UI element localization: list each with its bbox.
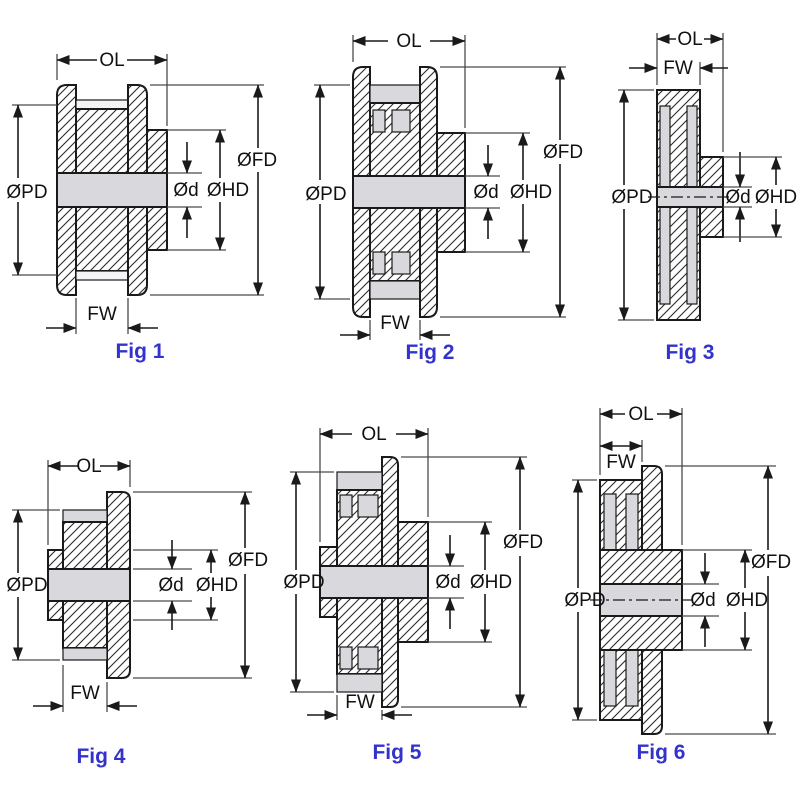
fig3-dim-fw: FW (629, 58, 728, 85)
figure-6-drawing: OL FW ØPD ØFD ØHD (545, 390, 800, 790)
fig2-label-d: Ød (473, 182, 498, 203)
fig1-label-hd: ØHD (207, 180, 249, 201)
fig6-label-fd: ØFD (751, 552, 791, 573)
fig2-label-pd: ØPD (305, 184, 346, 205)
figure-5-drawing: OL ØPD ØFD ØHD Ød (280, 390, 545, 790)
fig6-tooth-groove (626, 650, 638, 706)
fig6-flange-bottom (642, 650, 662, 734)
fig5-label-hd: ØHD (470, 572, 512, 593)
fig4-label-fw: FW (70, 683, 100, 704)
fig2-belt-band-bottom (370, 281, 420, 299)
fig1-dim-d: Ød (167, 142, 202, 238)
fig2-cross-section (353, 67, 465, 317)
fig5-bore (320, 566, 428, 598)
fig6-label-pd: ØPD (564, 590, 605, 611)
fig1-bore (57, 173, 167, 207)
fig4-label-fd: ØFD (228, 550, 268, 571)
fig3-label-ol: OL (677, 29, 702, 50)
fig3-label-fw: FW (663, 58, 693, 79)
fig1-label-d: Ød (173, 180, 198, 201)
fig5-caption: Fig 5 (372, 741, 421, 764)
fig1-dim-pd: ØPD (6, 105, 57, 275)
fig1-cross-section (57, 85, 167, 295)
fig2-recess (373, 110, 385, 132)
pulley-dimension-diagram-sheet: OL ØPD ØFD ØHD Ød (0, 0, 800, 800)
fig2-dim-pd: ØPD (305, 85, 350, 299)
fig2-recess (392, 252, 410, 274)
fig6-tooth-groove (604, 494, 616, 550)
fig5-recess (340, 495, 352, 517)
fig2-label-fd: ØFD (543, 142, 583, 163)
fig1-belt-band-bottom (76, 271, 128, 280)
fig2-bore (353, 176, 465, 208)
fig5-belt-band-top (337, 472, 382, 490)
fig3-cross-section (648, 90, 732, 320)
figure-2-drawing: OL ØPD ØFD ØHD Ød (280, 10, 590, 375)
figure-1-drawing: OL ØPD ØFD ØHD Ød (0, 10, 280, 370)
fig6-label-fw: FW (606, 452, 636, 473)
fig5-recess (358, 495, 378, 517)
fig6-tooth-groove (604, 650, 616, 706)
fig5-label-fd: ØFD (503, 532, 543, 553)
fig4-caption: Fig 4 (76, 745, 125, 768)
fig6-flange-top (642, 466, 662, 550)
fig4-belt-band-top (63, 510, 107, 522)
fig2-recess (392, 110, 410, 132)
fig5-dim-d: Ød (428, 535, 464, 629)
fig2-caption: Fig 2 (405, 341, 454, 364)
figure-4-drawing: OL ØPD ØFD ØHD Ød (0, 390, 280, 790)
fig4-dim-hd: ØHD (133, 550, 238, 620)
fig5-label-ol: OL (361, 424, 386, 445)
fig1-label-fw: FW (87, 304, 117, 325)
fig3-label-d: Ød (725, 187, 750, 208)
fig6-caption: Fig 6 (636, 741, 685, 764)
fig1-label-fd: ØFD (237, 150, 277, 171)
fig3-dim-pd: ØPD (611, 90, 654, 320)
fig2-belt-band-top (370, 85, 420, 103)
fig6-label-hd: ØHD (726, 590, 768, 611)
fig2-label-ol: OL (396, 31, 421, 52)
fig2-dim-d: Ød (465, 145, 500, 239)
fig4-label-pd: ØPD (6, 575, 47, 596)
fig6-dim-fw: FW (600, 440, 642, 473)
fig5-label-pd: ØPD (283, 572, 324, 593)
fig3-label-hd: ØHD (755, 187, 797, 208)
fig4-label-hd: ØHD (196, 575, 238, 596)
fig5-recess (340, 647, 352, 669)
fig2-label-fw: FW (380, 313, 410, 334)
fig3-dim-d: Ød (723, 152, 752, 242)
fig1-label-ol: OL (99, 50, 124, 71)
fig6-tooth-groove (626, 494, 638, 550)
fig6-label-ol: OL (628, 404, 653, 425)
fig4-bore (48, 569, 130, 601)
fig6-label-d: Ød (690, 590, 715, 611)
figure-3-drawing: OL FW ØPD Ød ØHD Fig 3 (590, 10, 800, 375)
fig4-cross-section (48, 492, 130, 678)
fig1-belt-band-top (76, 100, 128, 109)
fig3-label-pd: ØPD (611, 187, 652, 208)
fig2-label-hd: ØHD (510, 182, 552, 203)
fig1-dim-fw: FW (46, 298, 158, 334)
fig5-label-d: Ød (435, 572, 460, 593)
fig2-dim-fw: FW (340, 313, 450, 340)
fig5-label-fw: FW (345, 692, 375, 713)
fig5-cross-section (320, 457, 428, 707)
fig4-belt-band-bottom (63, 648, 107, 660)
fig1-label-pd: ØPD (6, 182, 47, 203)
fig5-recess (358, 647, 378, 669)
fig3-caption: Fig 3 (665, 341, 714, 364)
fig2-recess (373, 252, 385, 274)
fig4-label-d: Ød (158, 575, 183, 596)
fig5-belt-band-bottom (337, 674, 382, 692)
fig4-label-ol: OL (76, 456, 101, 477)
fig1-caption: Fig 1 (115, 340, 164, 363)
fig4-dim-d: Ød (133, 540, 192, 630)
